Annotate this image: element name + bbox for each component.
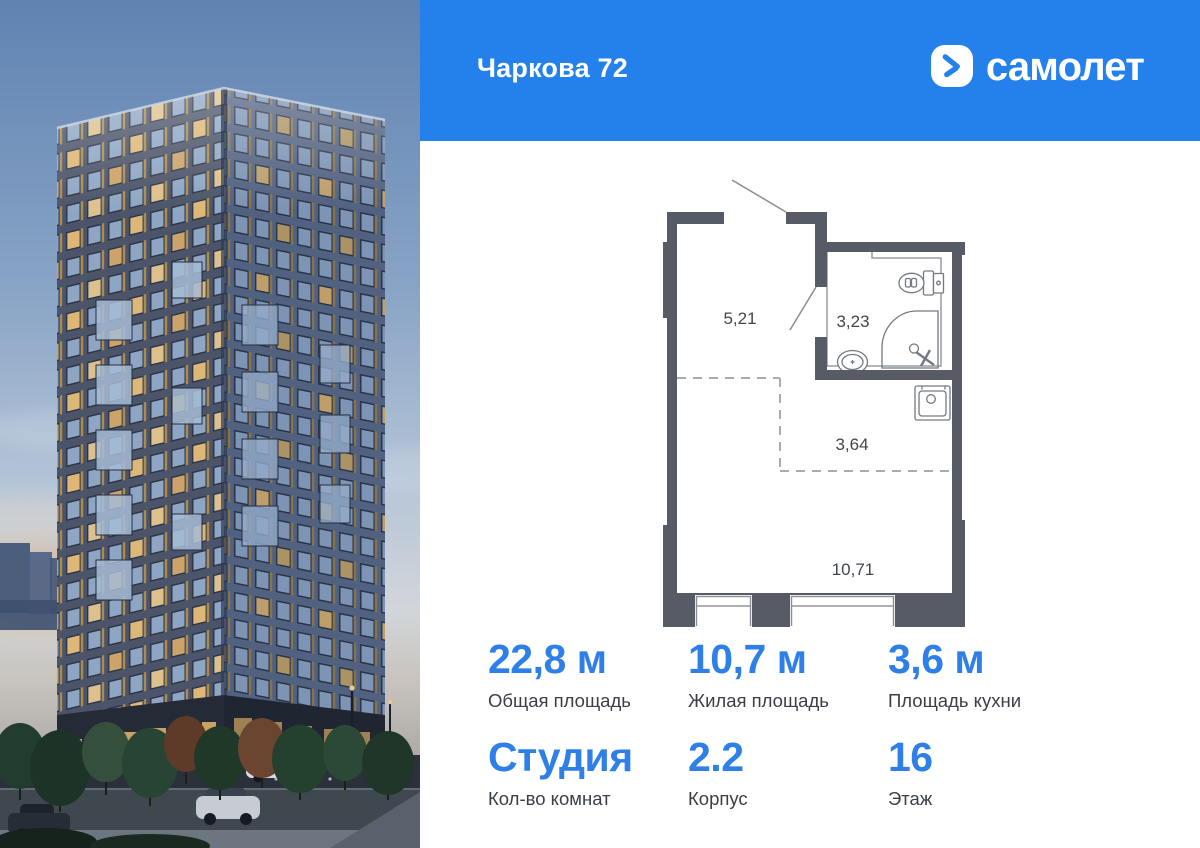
stat-building: 2.2 Корпус (688, 736, 883, 810)
stat-label: Площадь кухни (888, 690, 1083, 712)
stat-label: Этаж (888, 788, 1083, 810)
stat-value: 22,8 м (488, 638, 683, 681)
stat-rooms: Студия Кол-во комнат (488, 736, 683, 810)
stat-kitchen-area: 3,6 м Площадь кухни (888, 638, 1083, 712)
stat-value: 2.2 (688, 736, 883, 779)
stat-label: Кол-во комнат (488, 788, 683, 810)
listing-card: Чаркова 72 самолет (0, 0, 1200, 848)
stat-value: 16 (888, 736, 1083, 779)
stat-living-area: 10,7 м Жилая площадь (688, 638, 883, 712)
stat-value: Студия (488, 736, 683, 779)
stat-value: 10,7 м (688, 638, 883, 681)
building-photo (0, 0, 420, 848)
building-render-svg (0, 0, 420, 848)
info-panel: Чаркова 72 самолет (420, 0, 1200, 848)
stat-floor: 16 Этаж (888, 736, 1083, 810)
stat-value: 3,6 м (888, 638, 1083, 681)
stat-label: Жилая площадь (688, 690, 883, 712)
stat-label: Корпус (688, 788, 883, 810)
tower (57, 88, 385, 795)
stats-grid: 22,8 м Общая площадь 10,7 м Жилая площад… (420, 0, 1200, 848)
stat-label: Общая площадь (488, 690, 683, 712)
stat-total-area: 22,8 м Общая площадь (488, 638, 683, 712)
